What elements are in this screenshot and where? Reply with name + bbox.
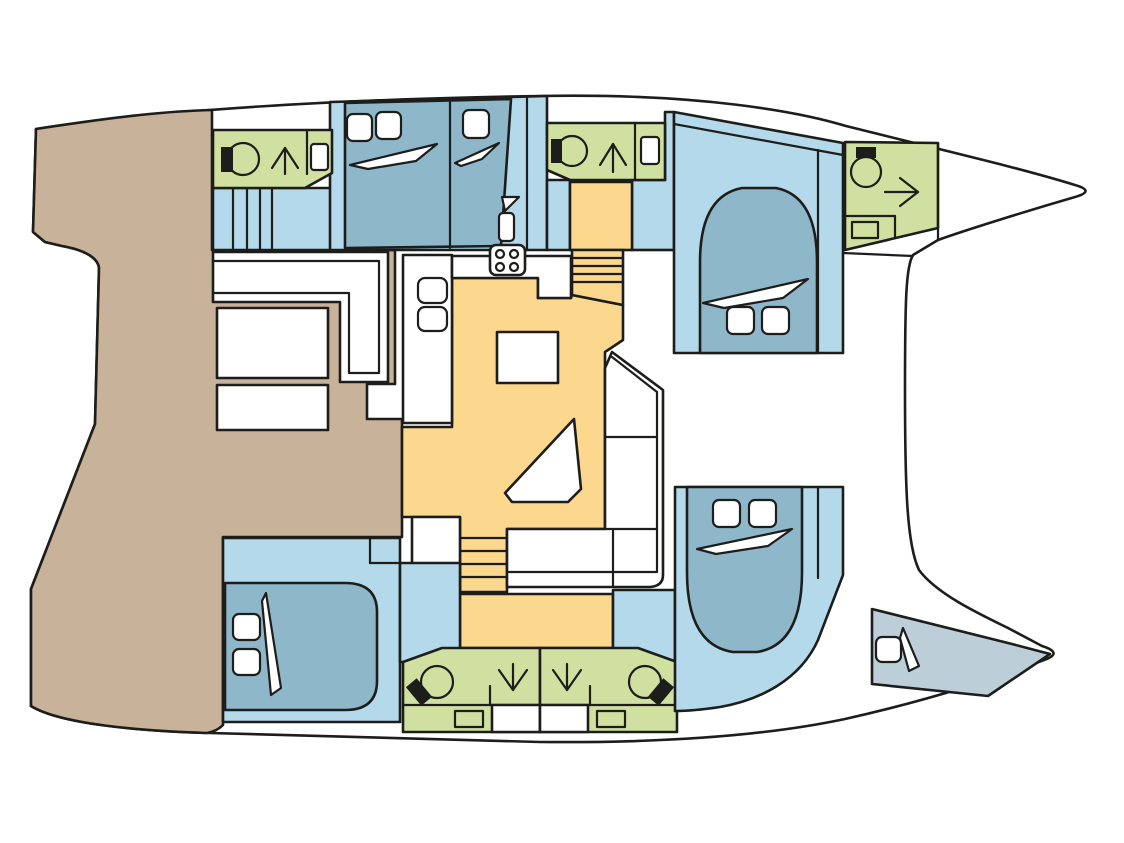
starboard-hull-corridor: [460, 594, 613, 648]
pillow: [233, 649, 260, 675]
stool-icon: [499, 213, 514, 241]
catamaran-floor-plan: [0, 0, 1124, 843]
shower-tray: [540, 705, 588, 732]
port-mid-bathroom: [547, 123, 665, 180]
pillow: [233, 614, 260, 640]
pillow: [762, 307, 789, 334]
double-berth: [700, 188, 817, 353]
sink-icon: [311, 144, 328, 170]
galley-sink-icon: [418, 307, 447, 331]
starboard-aft-cabin: [225, 583, 377, 710]
cockpit-bench: [217, 385, 328, 430]
pillow: [727, 307, 754, 334]
port-forward-cabin: [674, 112, 843, 353]
shower-tray: [492, 705, 540, 732]
pillow: [376, 112, 401, 139]
starboard-forward-bathroom: [540, 648, 677, 732]
stove-icon: [490, 245, 525, 275]
port-corridor-floor-a: [547, 180, 570, 250]
pillow: [876, 637, 901, 662]
galley-sink-icon: [418, 278, 447, 303]
pillow: [347, 114, 372, 141]
starboard-aft-bathroom: [403, 648, 540, 732]
port-stair-landing: [570, 182, 632, 250]
sink-icon: [641, 137, 659, 164]
pillow: [463, 110, 489, 138]
port-aft-bathroom: [213, 130, 332, 188]
pillow: [749, 500, 776, 527]
cockpit-table: [217, 308, 328, 378]
pillow: [713, 500, 740, 527]
double-berth: [687, 487, 802, 652]
double-berth: [225, 583, 377, 710]
port-aft-cabin: [345, 99, 519, 248]
floor-plan-svg: [0, 0, 1124, 843]
square-table: [497, 332, 558, 383]
